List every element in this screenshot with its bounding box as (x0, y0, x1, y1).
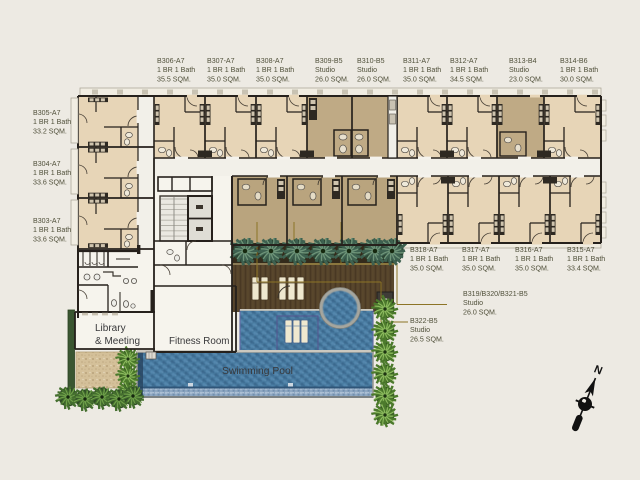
svg-text:35.0 SQM.: 35.0 SQM. (207, 75, 241, 83)
svg-text:B319/B320/B321-B5: B319/B320/B321-B5 (463, 290, 528, 298)
svg-text:35.0 SQM.: 35.0 SQM. (256, 75, 290, 83)
svg-text:Fitness Room: Fitness Room (169, 336, 229, 347)
svg-text:B312-A7: B312-A7 (450, 57, 478, 65)
svg-text:1 BR 1 Bath: 1 BR 1 Bath (403, 66, 441, 74)
svg-text:B303-A7: B303-A7 (33, 217, 61, 225)
svg-text:26.0 SQM.: 26.0 SQM. (357, 75, 391, 83)
svg-text:& Meeting: & Meeting (95, 336, 140, 347)
svg-text:1 BR 1 Bath: 1 BR 1 Bath (157, 66, 195, 74)
svg-text:33.4 SQM.: 33.4 SQM. (567, 264, 601, 272)
svg-text:1 BR 1 Bath: 1 BR 1 Bath (450, 66, 488, 74)
svg-text:Studio: Studio (509, 66, 529, 74)
svg-text:B322-B5: B322-B5 (410, 317, 438, 325)
svg-text:35.5 SQM.: 35.5 SQM. (157, 75, 191, 83)
svg-text:B311-A7: B311-A7 (403, 57, 430, 65)
svg-text:1 BR 1 Bath: 1 BR 1 Bath (567, 255, 605, 263)
svg-text:B317-A7: B317-A7 (462, 246, 490, 254)
svg-text:B309-B5: B309-B5 (315, 57, 343, 65)
svg-text:1 BR 1 Bath: 1 BR 1 Bath (462, 255, 500, 263)
svg-text:1 BR 1 Bath: 1 BR 1 Bath (515, 255, 553, 263)
svg-text:B314-B6: B314-B6 (560, 57, 588, 65)
svg-text:Studio: Studio (357, 66, 377, 74)
svg-text:Studio: Studio (410, 326, 430, 334)
svg-text:35.0 SQM.: 35.0 SQM. (410, 264, 444, 272)
svg-text:B316-A7: B316-A7 (515, 246, 543, 254)
svg-text:B310-B5: B310-B5 (357, 57, 385, 65)
svg-text:B305-A7: B305-A7 (33, 109, 61, 117)
svg-text:1 BR 1 Bath: 1 BR 1 Bath (410, 255, 448, 263)
svg-text:B308-A7: B308-A7 (256, 57, 284, 65)
svg-text:30.0 SQM.: 30.0 SQM. (560, 75, 594, 83)
svg-text:B306-A7: B306-A7 (157, 57, 185, 65)
svg-text:23.0 SQM.: 23.0 SQM. (509, 75, 543, 83)
svg-text:33.2 SQM.: 33.2 SQM. (33, 127, 67, 135)
svg-text:1 BR 1 Bath: 1 BR 1 Bath (256, 66, 294, 74)
svg-text:26.0 SQM.: 26.0 SQM. (463, 308, 497, 316)
svg-text:1 BR 1 Bath: 1 BR 1 Bath (33, 118, 71, 126)
svg-text:26.0 SQM.: 26.0 SQM. (315, 75, 349, 83)
svg-text:Studio: Studio (463, 299, 483, 307)
svg-text:35.0 SQM.: 35.0 SQM. (403, 75, 437, 83)
svg-text:Swimming Pool: Swimming Pool (222, 366, 293, 377)
svg-text:Studio: Studio (315, 66, 335, 74)
svg-text:33.6 SQM.: 33.6 SQM. (33, 235, 67, 243)
svg-text:B304-A7: B304-A7 (33, 160, 61, 168)
svg-text:1 BR 1 Bath: 1 BR 1 Bath (33, 169, 71, 177)
svg-text:Library: Library (95, 323, 126, 334)
svg-text:1 BR 1 Bath: 1 BR 1 Bath (33, 226, 71, 234)
svg-text:1 BR 1 Bath: 1 BR 1 Bath (560, 66, 598, 74)
svg-text:B315-A7: B315-A7 (567, 246, 595, 254)
svg-text:35.0 SQM.: 35.0 SQM. (462, 264, 496, 272)
svg-text:33.6 SQM.: 33.6 SQM. (33, 178, 67, 186)
svg-text:1 BR 1 Bath: 1 BR 1 Bath (207, 66, 245, 74)
svg-text:34.5 SQM.: 34.5 SQM. (450, 75, 484, 83)
svg-text:B313-B4: B313-B4 (509, 57, 537, 65)
svg-text:B318-A7: B318-A7 (410, 246, 438, 254)
svg-text:35.0 SQM.: 35.0 SQM. (515, 264, 549, 272)
svg-text:B307-A7: B307-A7 (207, 57, 235, 65)
svg-text:26.5 SQM.: 26.5 SQM. (410, 335, 444, 343)
